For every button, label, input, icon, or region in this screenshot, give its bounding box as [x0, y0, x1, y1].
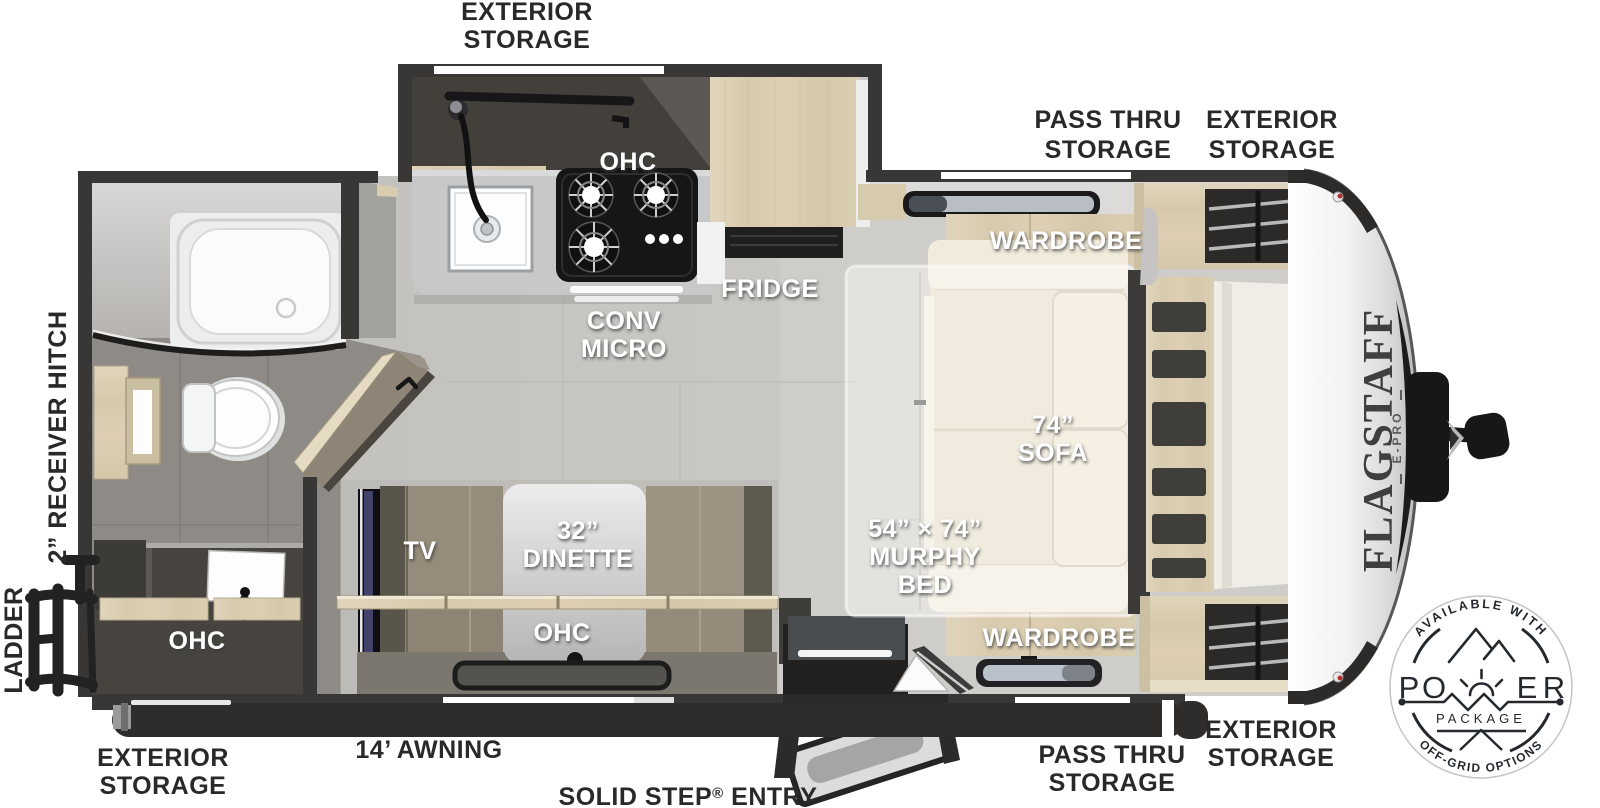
- svg-text:PACKAGE: PACKAGE: [1436, 711, 1526, 726]
- svg-text:FRIDGE: FRIDGE: [721, 275, 818, 303]
- svg-text:DINETTE: DINETTE: [523, 545, 633, 573]
- svg-text:PASS THRU: PASS THRU: [1034, 106, 1181, 134]
- svg-text:EXTERIOR: EXTERIOR: [461, 0, 593, 26]
- svg-text:32”: 32”: [557, 517, 599, 545]
- svg-text:STORAGE: STORAGE: [1045, 136, 1172, 164]
- svg-text:PASS THRU: PASS THRU: [1038, 741, 1185, 769]
- svg-text:WARDROBE: WARDROBE: [983, 624, 1136, 652]
- svg-text:SOFA: SOFA: [1018, 439, 1088, 467]
- svg-text:2” RECEIVER HITCH: 2” RECEIVER HITCH: [44, 311, 72, 564]
- svg-text:MURPHY: MURPHY: [869, 543, 980, 571]
- svg-text:WARDROBE: WARDROBE: [990, 227, 1143, 255]
- svg-text:CONV: CONV: [587, 307, 661, 335]
- svg-text:E-PRO: E-PRO: [1390, 410, 1404, 463]
- svg-text:OHC: OHC: [533, 619, 590, 647]
- svg-text:MICRO: MICRO: [581, 335, 667, 363]
- svg-text:STORAGE: STORAGE: [1049, 769, 1176, 797]
- svg-text:OHC: OHC: [168, 627, 225, 655]
- svg-text:STORAGE: STORAGE: [1208, 744, 1335, 772]
- svg-text:STORAGE: STORAGE: [100, 772, 227, 800]
- svg-text:BED: BED: [898, 571, 952, 599]
- svg-text:EXTERIOR: EXTERIOR: [1205, 716, 1337, 744]
- svg-text:14’ AWNING: 14’ AWNING: [355, 736, 502, 764]
- svg-text:E: E: [1517, 670, 1538, 705]
- svg-text:LADDER: LADDER: [0, 586, 28, 693]
- svg-text:EXTERIOR: EXTERIOR: [1206, 106, 1338, 134]
- svg-text:OHC: OHC: [599, 148, 656, 176]
- svg-text:EXTERIOR: EXTERIOR: [97, 744, 229, 772]
- svg-text:SOLID STEP® ENTRY: SOLID STEP® ENTRY: [559, 783, 818, 808]
- svg-text:STORAGE: STORAGE: [464, 26, 591, 54]
- svg-text:74”: 74”: [1032, 411, 1074, 439]
- svg-text:O: O: [1422, 670, 1446, 705]
- svg-text:TV: TV: [404, 537, 437, 565]
- svg-text:54” × 74”: 54” × 74”: [868, 515, 982, 543]
- svg-text:STORAGE: STORAGE: [1209, 136, 1336, 164]
